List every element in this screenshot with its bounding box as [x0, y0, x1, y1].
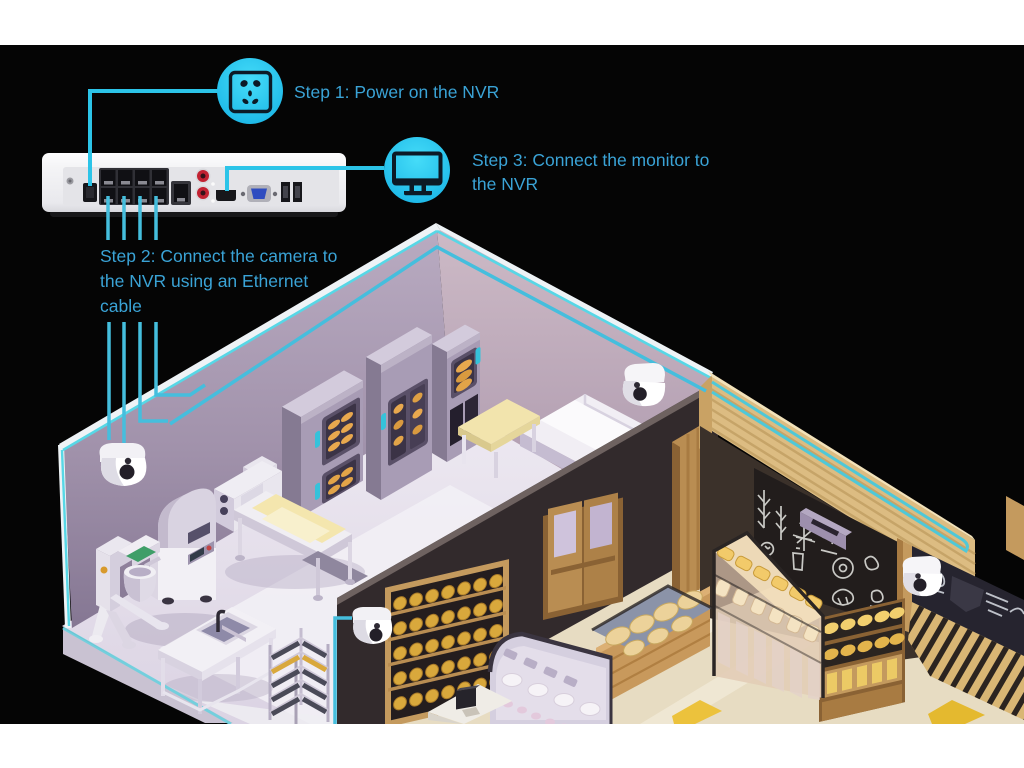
svg-text:Step 2: Connect the camera to: Step 2: Connect the camera to: [100, 246, 337, 266]
svg-text:Step 3: Connect the monitor to: Step 3: Connect the monitor to: [472, 150, 709, 170]
svg-text:the NVR: the NVR: [472, 174, 538, 194]
svg-text:the NVR using an Ethernet: the NVR using an Ethernet: [100, 271, 308, 291]
svg-text:Step 1: Power on the NVR: Step 1: Power on the NVR: [294, 82, 499, 102]
svg-text:cable: cable: [100, 296, 142, 316]
